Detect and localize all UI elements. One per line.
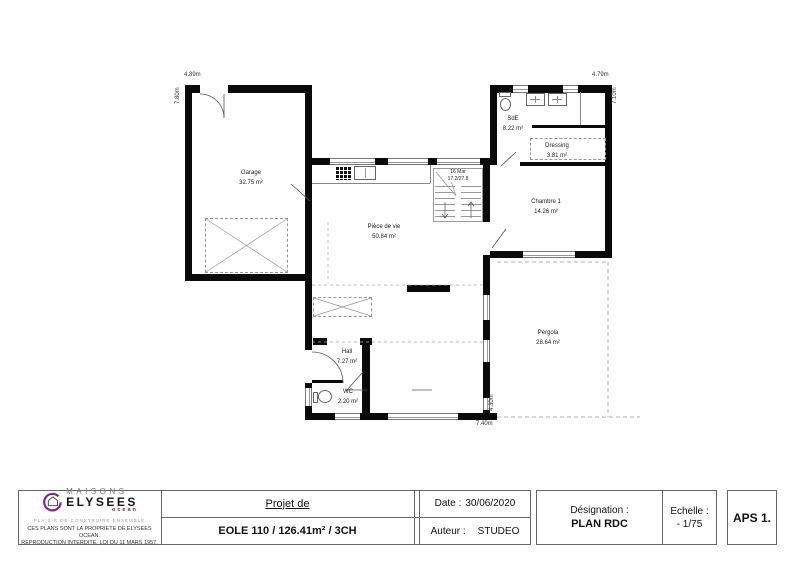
dim-top-left: 4.89m [184, 72, 201, 78]
room-area: 14.26 m² [531, 207, 561, 217]
wall-segment [305, 165, 312, 350]
stair-note: 16 Mar 17.2/27.8 [447, 169, 470, 182]
toilet-tank [499, 92, 511, 97]
wall-segment [605, 85, 612, 258]
plan-linework [0, 0, 800, 566]
date-cell: Date : 30/06/2020 [419, 490, 531, 517]
wall-segment [407, 285, 450, 292]
author-value: STUDEO [478, 526, 520, 537]
stair-steps [435, 186, 455, 220]
wall-segment [483, 362, 490, 398]
room-name: Pergola [536, 328, 560, 338]
wall-segment [532, 125, 605, 128]
room-label-dressing: Dressing 3.81 m² [545, 141, 569, 161]
kitchen-counter-edge [312, 183, 430, 184]
logo-row: MAISONS ELYSEES ocean [41, 488, 138, 514]
stair-ratio: 17.2/27.8 [448, 176, 469, 183]
window [437, 158, 480, 165]
designation-cell: Désignation : PLAN RDC [536, 490, 663, 545]
room-label-chambre-1: Chambre 1 14.26 m² [531, 197, 561, 217]
wall-segment [528, 85, 563, 93]
wall-segment [520, 162, 612, 166]
stage-cell: APS 1. [727, 490, 777, 545]
wall-segment [483, 255, 490, 295]
window [330, 158, 375, 165]
window [483, 340, 490, 362]
room-name: WC [338, 387, 358, 397]
kitchen-sink [354, 166, 376, 180]
room-name: Hall [337, 347, 357, 357]
brand-ocean: ocean [112, 508, 138, 514]
wall-segment [480, 158, 490, 165]
room-name: Dressing [545, 141, 569, 151]
cooktop [336, 167, 352, 180]
room-area: 50.84 m² [368, 232, 401, 242]
wall-segment [312, 158, 330, 165]
room-name: Pièce de vie [368, 222, 401, 232]
project-label: Projet de [265, 498, 309, 510]
garage-door-opening [200, 85, 228, 93]
scale-label: Echelle : [670, 506, 708, 517]
wall-segment [575, 251, 612, 258]
wall-segment [360, 413, 388, 420]
copyright-line-2: REPRODUCTION INTERDITE, LOI DU 11 MARS 1… [18, 540, 161, 547]
room-area: 3.81 m² [545, 151, 569, 161]
kitchen-counter-edge [430, 165, 431, 183]
wall-segment [362, 345, 370, 413]
closet [313, 297, 372, 317]
designation-label: Désignation : [570, 505, 628, 516]
brand-tagline: PLAISIR DE CONSTRUIRE ENSEMBLE [34, 518, 146, 523]
room-area: 7.27 m² [337, 357, 357, 367]
room-label-piece-de-vie: Pièce de vie 50.84 m² [368, 222, 401, 242]
scale-value: - 1/75 [677, 519, 703, 530]
shower-partition [580, 92, 581, 125]
copyright-line-1: CES PLANS SONT LA PROPRIETE DE ELYSEES O… [18, 526, 161, 540]
entry-door-opening [305, 350, 312, 383]
room-label-wc: WC 2.20 m² [338, 387, 358, 407]
room-label-hall: Hall 7.27 m² [337, 347, 357, 367]
project-label-cell: Projet de [161, 490, 414, 517]
room-area: 28.64 m² [536, 338, 560, 348]
window [335, 413, 360, 420]
room-area: 2.20 m² [338, 397, 358, 407]
window [563, 85, 578, 93]
project-value-cell: EOLE 110 / 126.41m² / 3CH [161, 517, 414, 545]
room-label-sde: SdE 8.22 m² [503, 114, 523, 134]
date-label: Date : [435, 498, 462, 509]
room-name: Chambre 1 [531, 197, 561, 207]
wall-segment [458, 413, 497, 420]
washbasin [548, 93, 567, 106]
dim-right: 7.10m [612, 87, 618, 104]
company-logo: MAISONS ELYSEES ocean PLAISIR DE CONSTRU… [18, 490, 161, 545]
wall-segment [185, 85, 192, 281]
project-value: EOLE 110 / 126.41m² / 3CH [218, 525, 356, 537]
dim-bottom-right: 4.30m [489, 394, 495, 411]
scale-cell: Echelle : - 1/75 [662, 490, 717, 545]
window [523, 251, 575, 258]
wall-segment [490, 85, 497, 165]
wall-segment [483, 320, 490, 340]
room-area: 8.22 m² [503, 124, 523, 134]
wall-segment [305, 413, 335, 420]
floor-plan-sheet: Garage 32.75 m² Pièce de vie 50.84 m² Sd… [0, 0, 800, 566]
wall-segment [313, 338, 327, 345]
room-label-pergola: Pergola 28.64 m² [536, 328, 560, 348]
dim-bottom: 7.40m [476, 421, 493, 427]
room-name: Garage [239, 168, 263, 178]
room-area: 32.75 m² [239, 178, 263, 188]
garage-parking-zone [205, 218, 288, 273]
sliding-bay-window [388, 413, 458, 420]
wall-segment [375, 158, 388, 165]
author-label: Auteur : [431, 526, 466, 537]
wall-segment [483, 165, 490, 222]
date-value: 30/06/2020 [465, 498, 515, 509]
wall-segment [185, 274, 312, 281]
dim-top-right: 4.79m [592, 72, 609, 78]
author-cell: Auteur : STUDEO [419, 517, 531, 545]
room-label-garage: Garage 32.75 m² [239, 168, 263, 188]
wall-segment [483, 410, 490, 420]
wall-segment [428, 158, 437, 165]
room-name: SdE [503, 114, 523, 124]
designation-value: PLAN RDC [571, 518, 628, 530]
wall-segment [360, 338, 372, 345]
copyright-note: CES PLANS SONT LA PROPRIETE DE ELYSEES O… [18, 526, 161, 547]
washbasin [526, 93, 545, 106]
brand-text: MAISONS ELYSEES ocean [66, 488, 138, 514]
stair-count: 16 Mar [448, 169, 469, 176]
wall-segment [312, 380, 343, 383]
window [388, 158, 428, 165]
dim-left: 7.80m [175, 87, 181, 104]
elysees-house-icon [41, 489, 63, 513]
toilet-bowl [500, 98, 511, 111]
toilet-bowl [318, 390, 332, 403]
stage-value: APS 1. [733, 511, 771, 525]
wall-segment [490, 251, 523, 258]
wall-segment [228, 85, 312, 93]
stair-steps [461, 186, 481, 220]
window [483, 295, 490, 320]
window [513, 85, 528, 93]
window [305, 388, 312, 406]
